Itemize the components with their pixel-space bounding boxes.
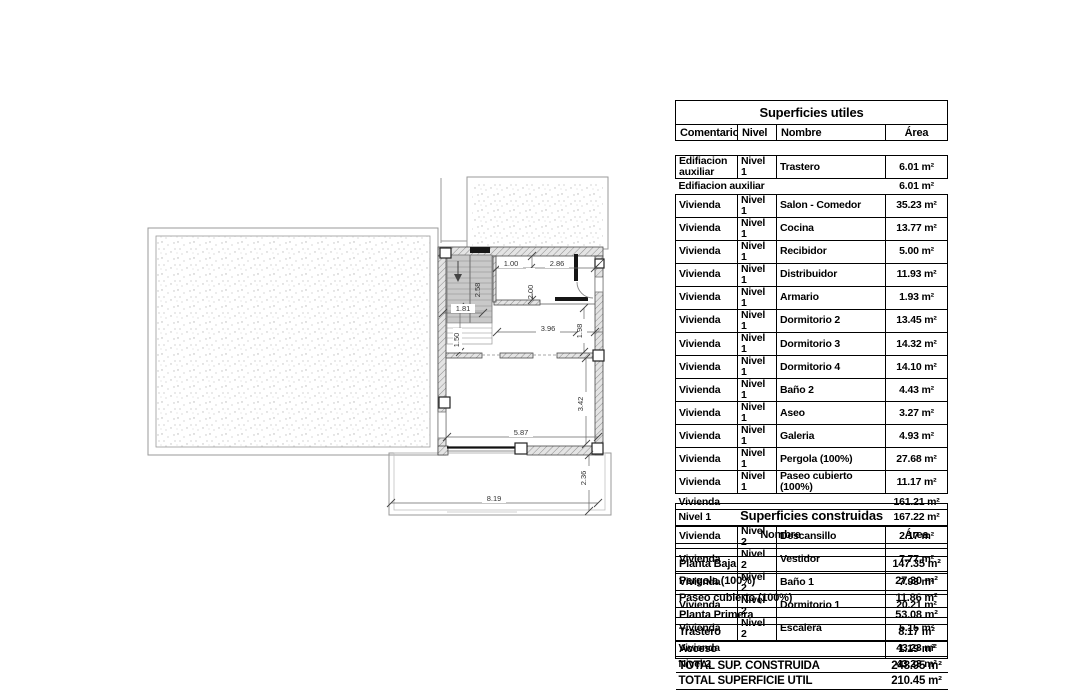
cell-c-niv: Nivel 1 [738,425,777,448]
cell-c-niv: Nivel 1 [738,286,777,309]
cell-total-label: TOTAL SUP. CONSTRUIDA [676,659,886,673]
cell-c-nom: Galeria [777,425,886,448]
cell-c-area: 13.77 m² [886,217,948,240]
cell-c-area: 11.93 m² [886,263,948,286]
cell-c-area: 147.35 m² [886,557,948,574]
cell-c-com: Vivienda [676,356,738,379]
cell-c-nom2: Planta Primera [676,608,886,625]
cell-c-com: Vivienda [676,333,738,356]
column-5 [515,443,527,454]
cell-c-nom2: Paseo cubierto (100%) [676,591,886,608]
cell-sum-label: Edifiacion auxiliar [676,179,886,195]
utiles-row-10: ViviendaNivel 1Dormitorio 414.10 m² [676,356,948,379]
cell-c-area: 8.17 m² [886,625,948,642]
utiles-row-2: Edifiacion auxiliar6.01 m² [676,179,948,195]
column-3 [593,350,604,361]
cell-c-area: 14.32 m² [886,333,948,356]
cell-c-nom: Dormitorio 4 [777,356,886,379]
cell-c-area: 53.08 m² [886,608,948,625]
cell-c-area: 27.30 m² [886,574,948,591]
cell-c-area: 3.27 m² [886,402,948,425]
cell-c-niv: Nivel 1 [738,333,777,356]
cell-c-nom: Pergola (100%) [777,448,886,471]
utiles-row-1: Edifiacion auxiliarNivel 1Trastero6.01 m… [676,156,948,179]
utiles-row-25: TOTAL SUPERFICIE UTIL210.45 m² [676,672,948,689]
cell-c-nom: Recibidor [777,240,886,263]
utiles-row-6: ViviendaNivel 1Distribuidor11.93 m² [676,263,948,286]
col-header-nombre: Nombre [777,125,886,141]
column-6 [592,443,603,454]
cell-sum-area: 6.01 m² [886,179,948,195]
construidas-title: Superficies construidas [676,504,948,527]
cell-c-area: 13.45 m² [886,309,948,332]
dim-1-81: 1.81 [456,304,471,313]
construidas-row-1: Planta Baja147.35 m² [676,557,948,574]
cell-c-area: 27.68 m² [886,448,948,471]
cell-c-nom2: Planta Baja [676,557,886,574]
construidas-row-6: Acceso1.19 m² [676,642,948,659]
porch-outer-border [389,453,611,515]
cell-c-nom: Trastero [777,156,886,179]
construidas-header-row: Nombre Área [676,527,948,544]
cell-c-com: Vivienda [676,286,738,309]
cell-c-com: Vivienda [676,194,738,217]
column-4 [439,397,450,408]
utiles-row-9: ViviendaNivel 1Dormitorio 314.32 m² [676,333,948,356]
window-left [438,412,446,438]
construidas-body: Planta Baja147.35 m²Pergola (100%)27.30 … [676,544,948,673]
construidas-title-row: Superficies construidas [676,504,948,527]
utiles-row-8: ViviendaNivel 1Dormitorio 213.45 m² [676,309,948,332]
upper-terrace-gravel [472,182,603,248]
cell-c-area: 4.93 m² [886,425,948,448]
construidas-row-2: Pergola (100%)27.30 m² [676,574,948,591]
cell-c-area: 35.23 m² [886,194,948,217]
cell-c-nom: Armario [777,286,886,309]
lower-terrace [389,453,611,515]
dim-2-86: 2.86 [550,259,565,268]
utiles-header-row: Comentarios Nivel Nombre Área [676,125,948,141]
construidas-row-0 [676,544,948,557]
dim-1-50: 1.50 [452,333,461,348]
cell-c-nom: Salon - Comedor [777,194,886,217]
wall-bottom-left-stub [438,446,448,455]
col-header-comentarios: Comentarios [676,125,738,141]
utiles-row-0 [676,141,948,156]
window-right [595,277,603,292]
cell-c-niv: Nivel 1 [738,356,777,379]
cell-c-nom: Distribuidor [777,263,886,286]
cell-c-niv: Nivel 1 [738,402,777,425]
cell-c-com: Vivienda [676,471,738,494]
dim-2-36: 2.36 [579,471,588,486]
utiles-row-13: ViviendaNivel 1Galeria4.93 m² [676,425,948,448]
wall-interior-2b [500,353,533,358]
cell-c-area: 11.17 m² [886,471,948,494]
wall-interior-v [493,256,496,302]
cell-c-nom: Aseo [777,402,886,425]
utiles-row-4: ViviendaNivel 1Cocina13.77 m² [676,217,948,240]
table-superficies-construidas: Superficies construidas Nombre Área Plan… [675,503,948,673]
utiles-row-3: ViviendaNivel 1Salon - Comedor35.23 m² [676,194,948,217]
cell-c-area: 1.19 m² [886,642,948,659]
lintel [470,247,490,253]
utiles-title-row: Superficies utiles [676,101,948,125]
cell-c-area: 14.10 m² [886,356,948,379]
dim-3-96: 3.96 [541,324,556,333]
cell-c-nom: Baño 2 [777,379,886,402]
door-swing-arc [577,282,593,298]
dim-3-42: 3.42 [576,397,585,412]
cell-total-area: 248.95 m² [886,659,948,673]
dim-5-87: 5.87 [514,428,529,437]
cell-c-niv: Nivel 1 [738,263,777,286]
col-header-nombre-2: Nombre [676,527,886,544]
cell-c-area: 4.43 m² [886,379,948,402]
site-terrain [148,177,608,455]
wall-interior-2a [446,353,482,358]
col-header-nivel: Nivel [738,125,777,141]
utiles-row-7: ViviendaNivel 1Armario1.93 m² [676,286,948,309]
utiles-row-12: ViviendaNivel 1Aseo3.27 m² [676,402,948,425]
wall-interior-black [555,297,588,301]
cell-c-nom2: Trastero [676,625,886,642]
construidas-row-7: TOTAL SUP. CONSTRUIDA248.95 m² [676,659,948,673]
cell-c-area: 1.93 m² [886,286,948,309]
dim-1-00: 1.00 [504,259,519,268]
cell-c-niv: Nivel 1 [738,309,777,332]
cell-c-com: Vivienda [676,379,738,402]
utiles-title: Superficies utiles [676,101,948,125]
cell-c-com: Vivienda [676,402,738,425]
cell-c-nom: Dormitorio 3 [777,333,886,356]
cell-c-niv: Nivel 1 [738,471,777,494]
col-header-area: Área [886,125,948,141]
floor-plan-svg: 1.00 2.86 3.96 5.87 8.19 1.81 2.00 2.58 … [0,0,675,682]
construidas-row-3: Paseo cubierto (100%)11.86 m² [676,591,948,608]
cell-c-nom: Paseo cubierto (100%) [777,471,886,494]
construidas-row-4: Planta Primera53.08 m² [676,608,948,625]
door-jamb [574,254,578,281]
cell-c-com: Vivienda [676,263,738,286]
cell-c-niv: Nivel 1 [738,240,777,263]
wall-interior-2c [557,353,598,358]
cell-c-nom: Dormitorio 2 [777,309,886,332]
utiles-row-15: ViviendaNivel 1Paseo cubierto (100%)11.1… [676,471,948,494]
cell-c-nom: Cocina [777,217,886,240]
cell-c-nom2: Acceso [676,642,886,659]
dim-2-00: 2.00 [526,285,535,300]
cell-c-com: Edifiacion auxiliar [676,156,738,179]
cell-c-niv: Nivel 1 [738,194,777,217]
cell-c-niv: Nivel 1 [738,448,777,471]
cell-c-area: 5.00 m² [886,240,948,263]
page: { "plan": { "dims": { "d100": "1.00", "d… [0,0,1070,682]
cell-c-area: 6.01 m² [886,156,948,179]
dim-2-58: 2.58 [473,283,482,298]
construidas-row-5: Trastero8.17 m² [676,625,948,642]
cell-c-com: Vivienda [676,448,738,471]
cell-c-niv: Nivel 1 [738,217,777,240]
column-1 [440,248,451,258]
floor-plan: 1.00 2.86 3.96 5.87 8.19 1.81 2.00 2.58 … [0,0,675,682]
cell-c-com: Vivienda [676,240,738,263]
cell-gap-cell [676,141,948,156]
dim-8-19: 8.19 [487,494,502,503]
cell-total-area: 210.45 m² [886,672,948,689]
cell-gap-cell [676,544,948,557]
cell-c-nom2: Pergola (100%) [676,574,886,591]
cell-c-com: Vivienda [676,309,738,332]
cell-total-label: TOTAL SUPERFICIE UTIL [676,672,886,689]
wall-interior-1 [494,300,540,305]
utiles-row-5: ViviendaNivel 1Recibidor5.00 m² [676,240,948,263]
utiles-row-14: ViviendaNivel 1Pergola (100%)27.68 m² [676,448,948,471]
utiles-row-11: ViviendaNivel 1Baño 24.43 m² [676,379,948,402]
dim-1-98: 1.98 [575,324,584,339]
cell-c-com: Vivienda [676,217,738,240]
terrace-gravel-area [156,236,430,447]
col-header-area-2: Área [886,527,948,544]
cell-c-niv: Nivel 1 [738,156,777,179]
cell-c-com: Vivienda [676,425,738,448]
cell-c-area: 11.86 m² [886,591,948,608]
cell-c-niv: Nivel 1 [738,379,777,402]
